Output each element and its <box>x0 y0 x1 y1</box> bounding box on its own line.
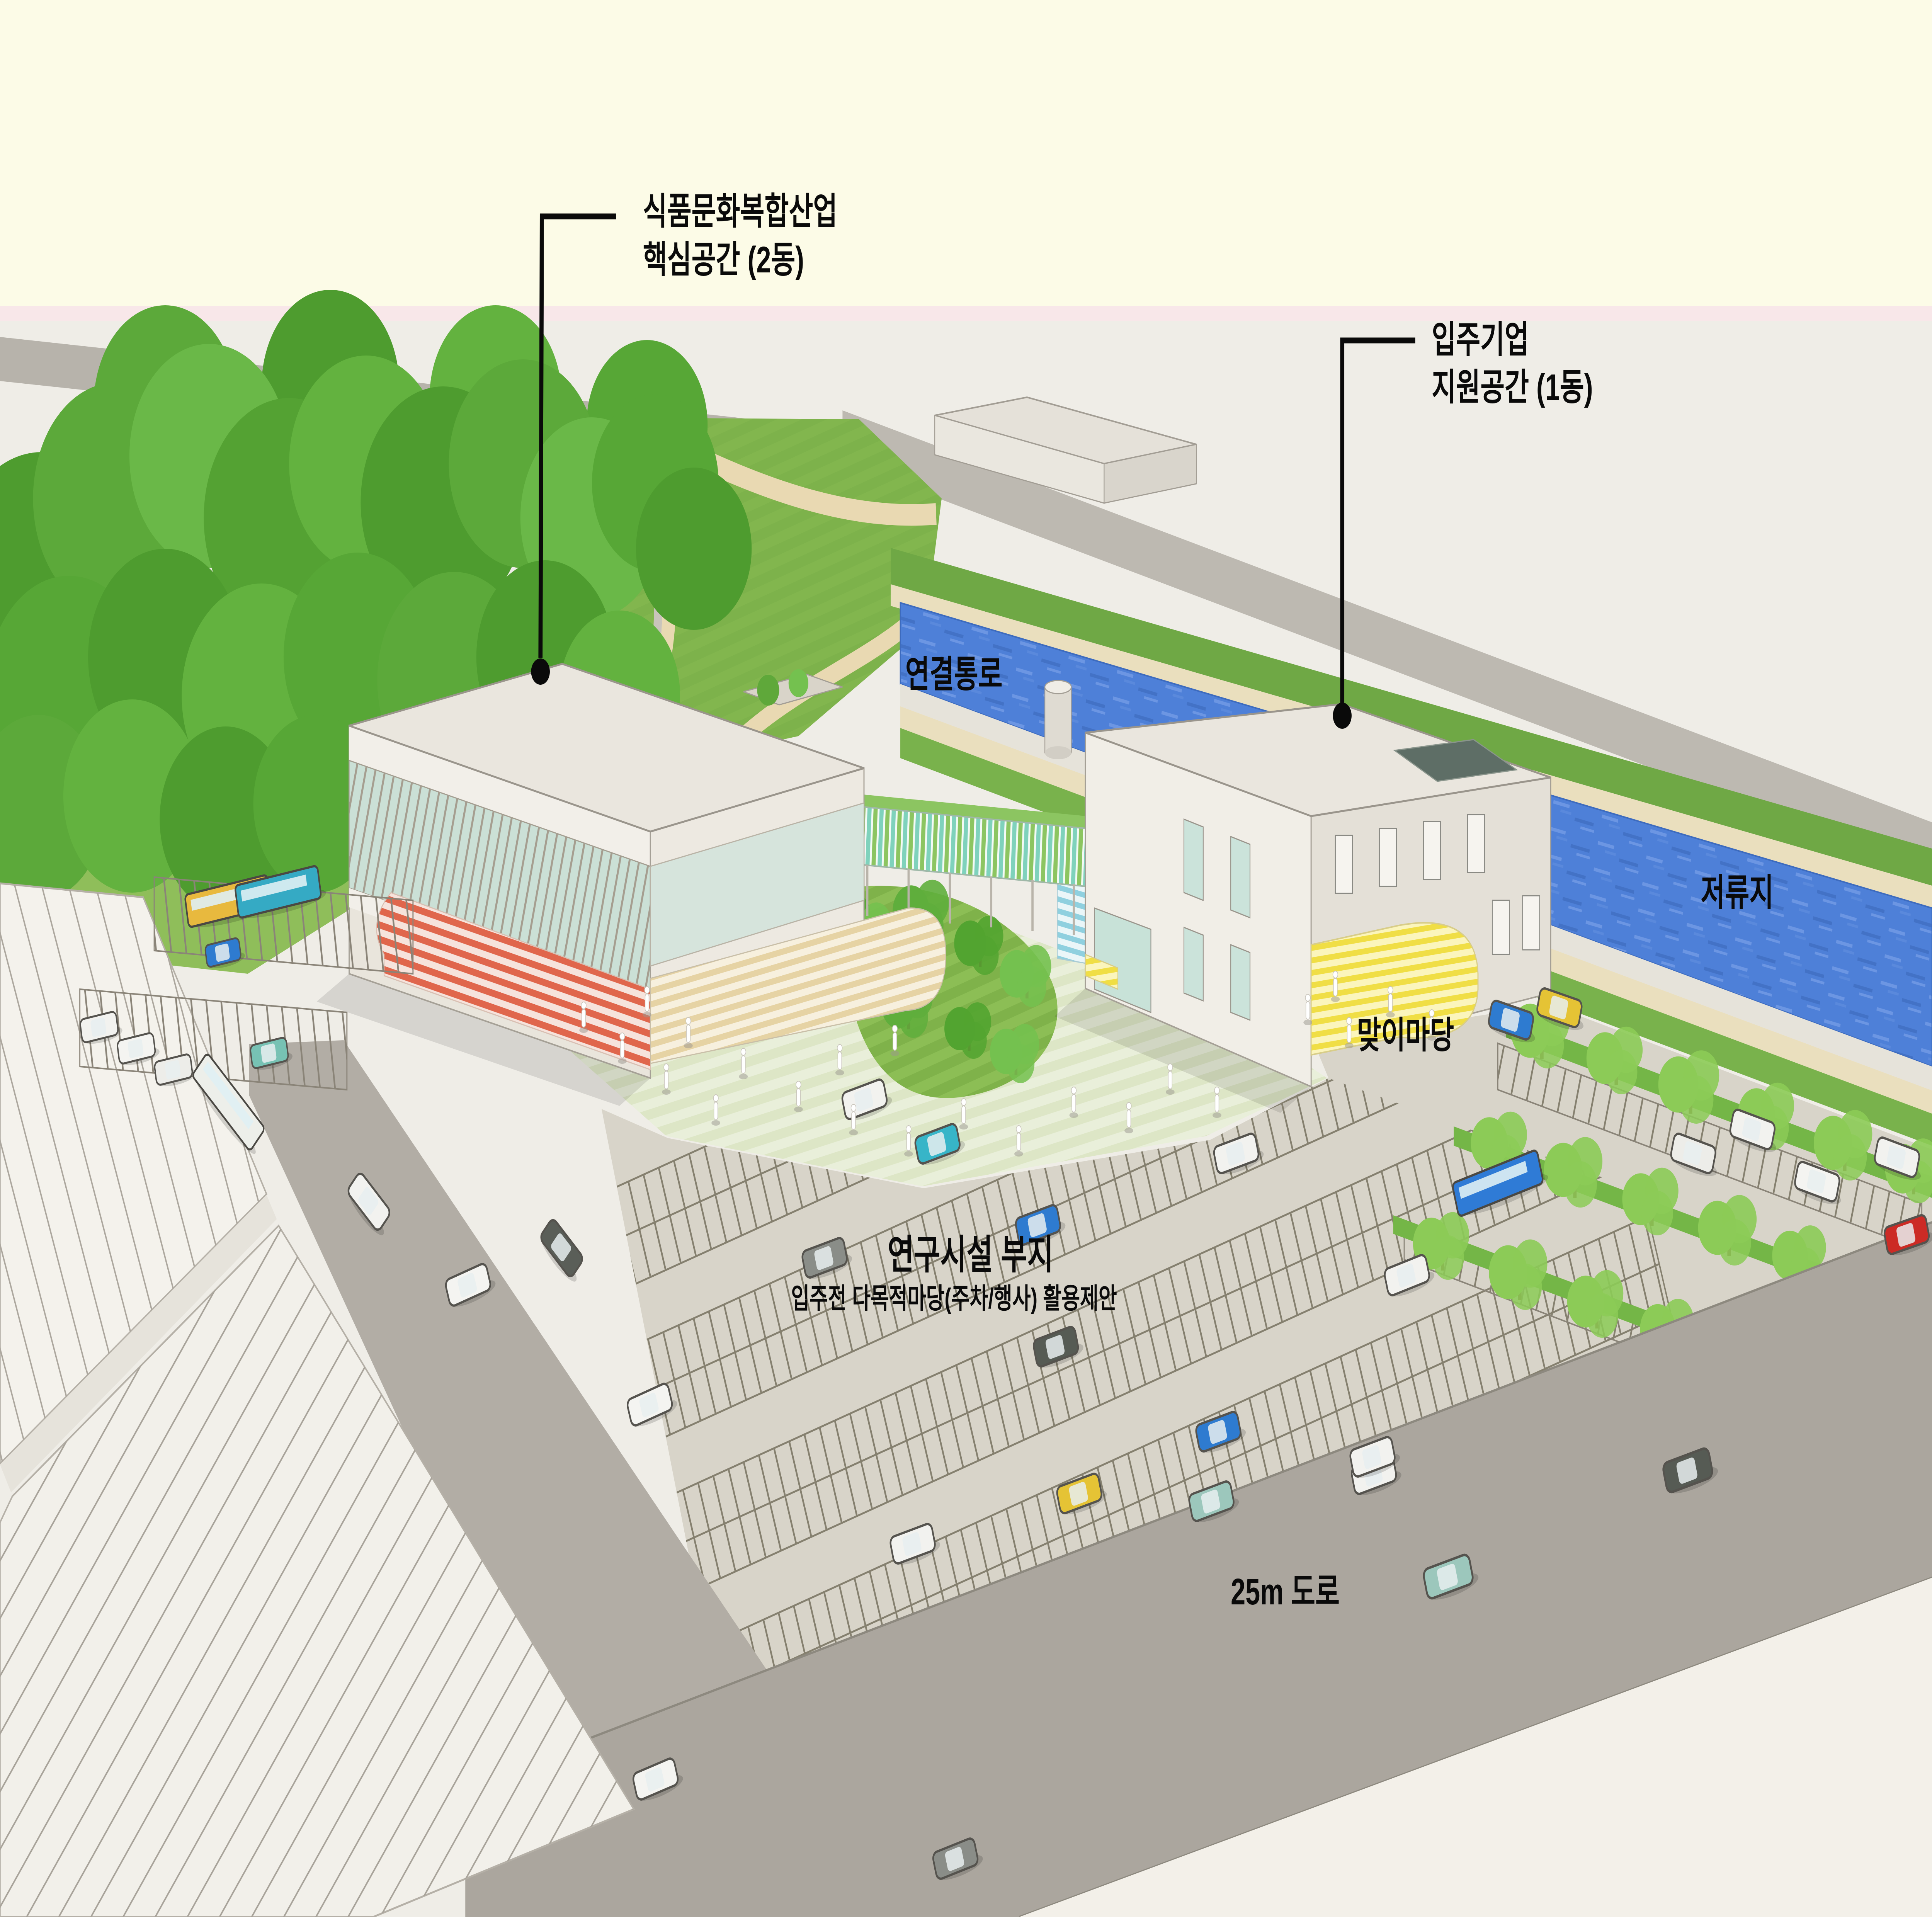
sky-band <box>0 0 1932 306</box>
building1-leader-dot <box>1333 703 1351 729</box>
building2-label-line2: 핵심공간 (2동) <box>643 239 804 281</box>
building1-label-line2: 지원공간 (1동) <box>1432 367 1593 408</box>
building1-label-line1: 입주기업 <box>1432 319 1529 361</box>
site-aerial-rendering: 식품문화복합산업 핵심공간 (2동) 입주기업 지원공간 (1동) 연결통로 저… <box>0 0 1932 1917</box>
building2-leader-dot <box>531 658 550 685</box>
research-site-title: 연구시설 부지 <box>888 1233 1054 1277</box>
building2-label-line1: 식품문화복합산업 <box>643 191 837 232</box>
corridor-label: 연결통로 <box>905 654 1003 695</box>
water-tank-cylinder <box>1045 680 1071 759</box>
research-site-subtitle: 입주전 다목적마당(주차/행사) 활용제안 <box>791 1283 1117 1315</box>
pond-label: 저류지 <box>1701 872 1774 913</box>
welcome-yard-label: 맞이마당 <box>1357 1015 1454 1056</box>
road-label: 25m 도로 <box>1231 1571 1340 1613</box>
